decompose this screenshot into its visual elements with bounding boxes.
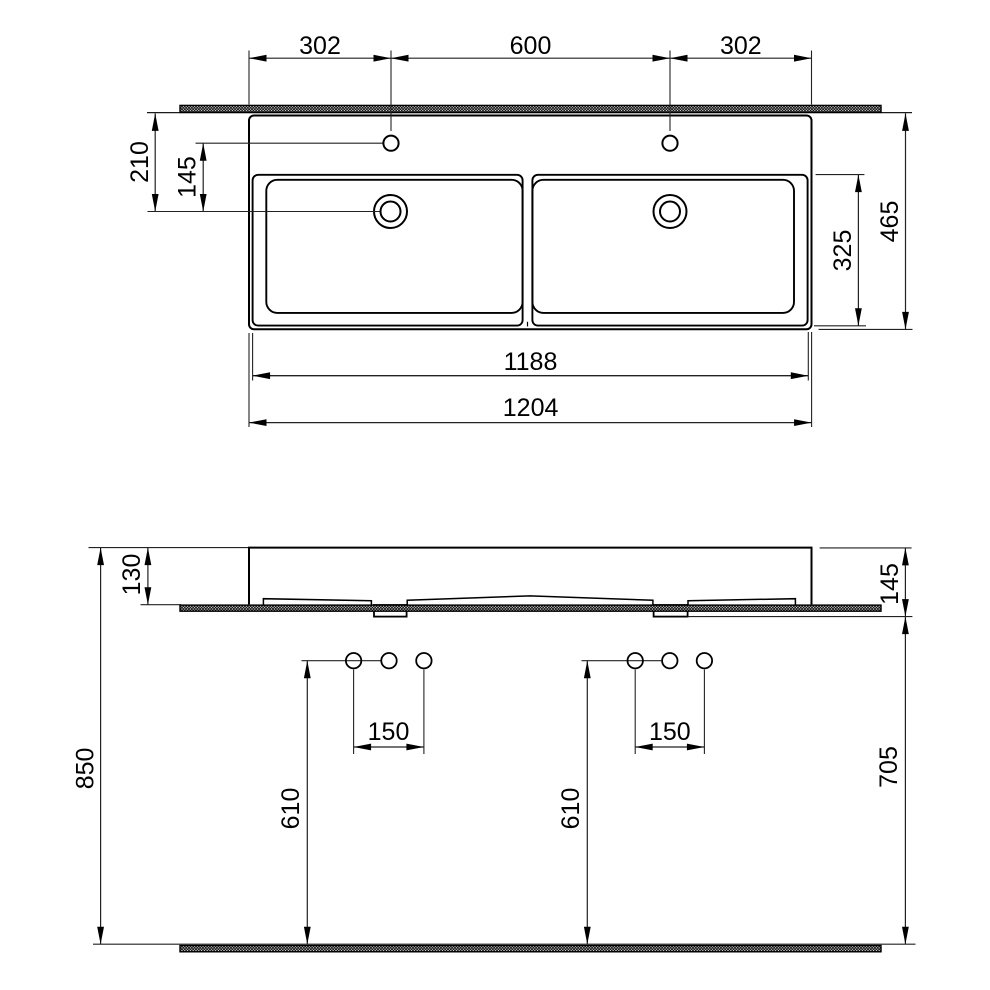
svg-text:610: 610 (557, 788, 585, 830)
svg-text:1188: 1188 (504, 348, 558, 376)
svg-text:150: 150 (649, 718, 691, 746)
svg-text:325: 325 (829, 230, 857, 272)
svg-text:145: 145 (174, 156, 202, 198)
svg-text:130: 130 (118, 554, 146, 596)
svg-text:302: 302 (299, 32, 341, 60)
svg-text:302: 302 (720, 32, 762, 60)
svg-text:150: 150 (368, 718, 410, 746)
svg-text:705: 705 (875, 746, 903, 788)
svg-text:145: 145 (876, 563, 904, 605)
svg-text:210: 210 (126, 141, 154, 183)
svg-text:600: 600 (510, 32, 552, 60)
svg-text:610: 610 (277, 788, 305, 830)
svg-text:1204: 1204 (503, 394, 559, 422)
svg-text:465: 465 (876, 201, 904, 243)
svg-text:850: 850 (71, 748, 99, 790)
